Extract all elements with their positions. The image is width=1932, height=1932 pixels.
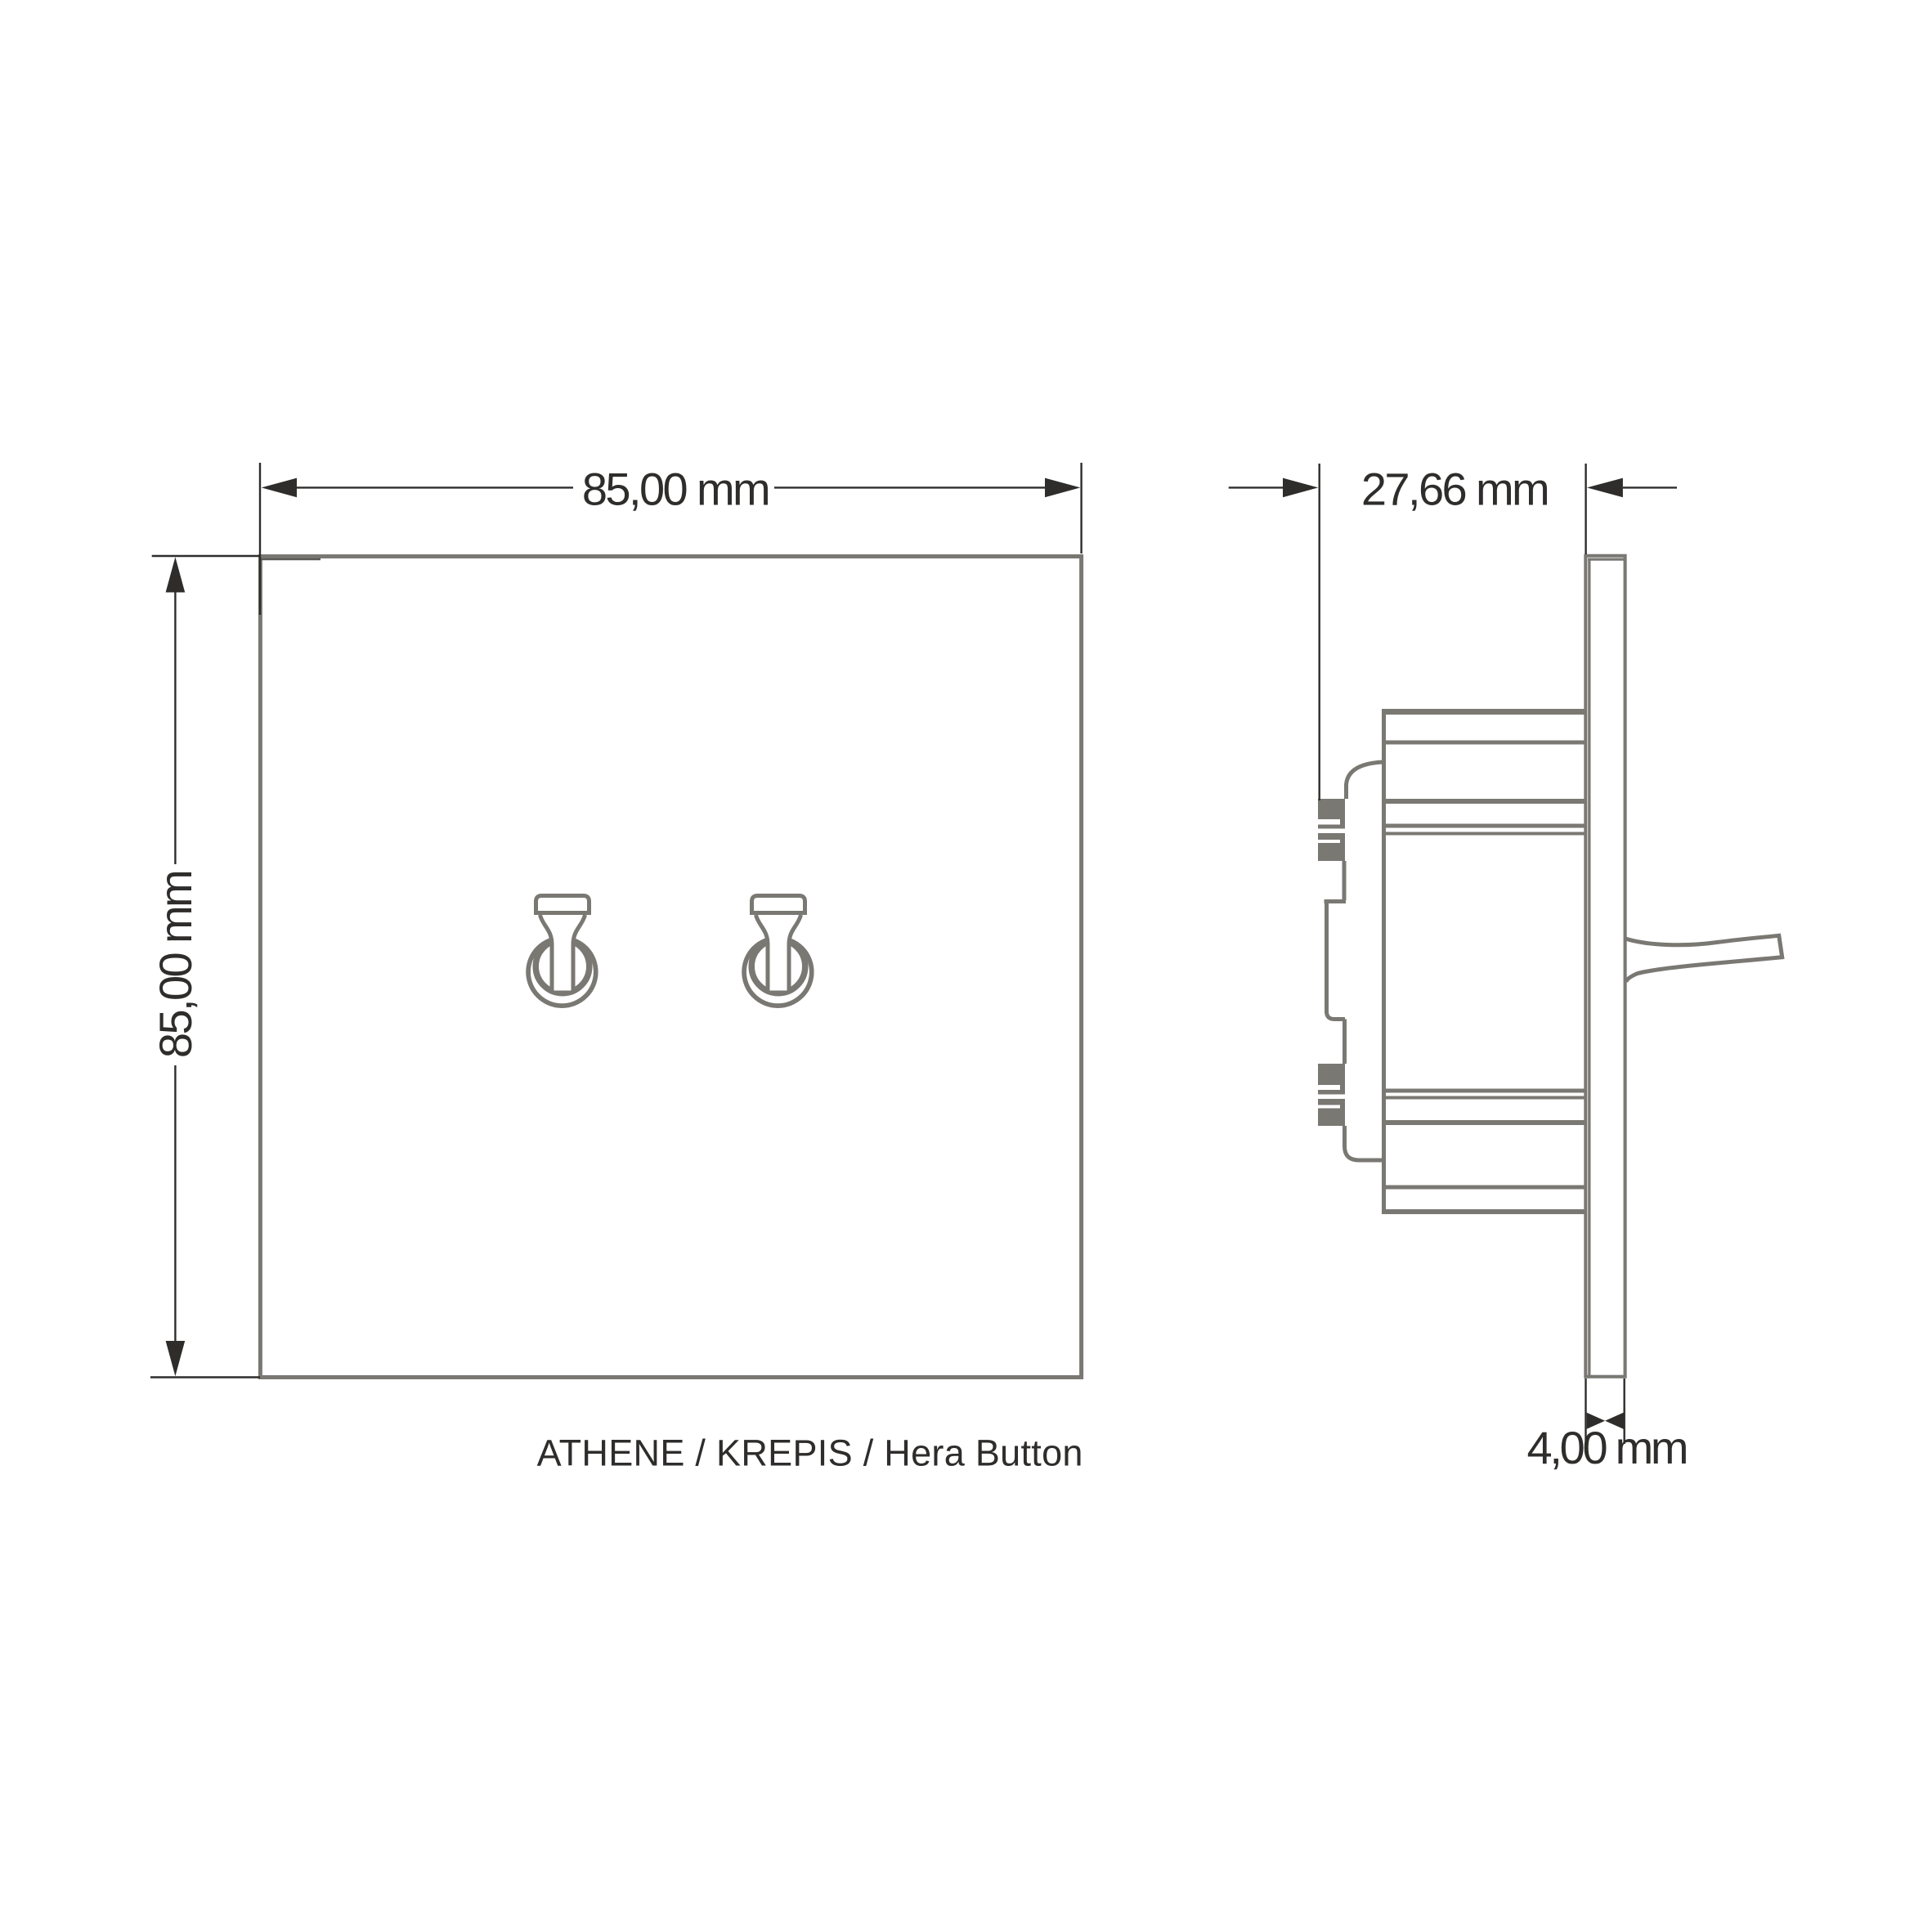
svg-text:85,00 mm: 85,00 mm — [150, 872, 201, 1058]
svg-text:27,66 mm: 27,66 mm — [1361, 463, 1548, 514]
svg-text:ATHENE / KREPIS / Hera Button: ATHENE / KREPIS / Hera Button — [537, 1432, 1083, 1474]
svg-text:85,00 mm: 85,00 mm — [582, 463, 769, 514]
svg-text:4,00 mm: 4,00 mm — [1527, 1422, 1687, 1473]
